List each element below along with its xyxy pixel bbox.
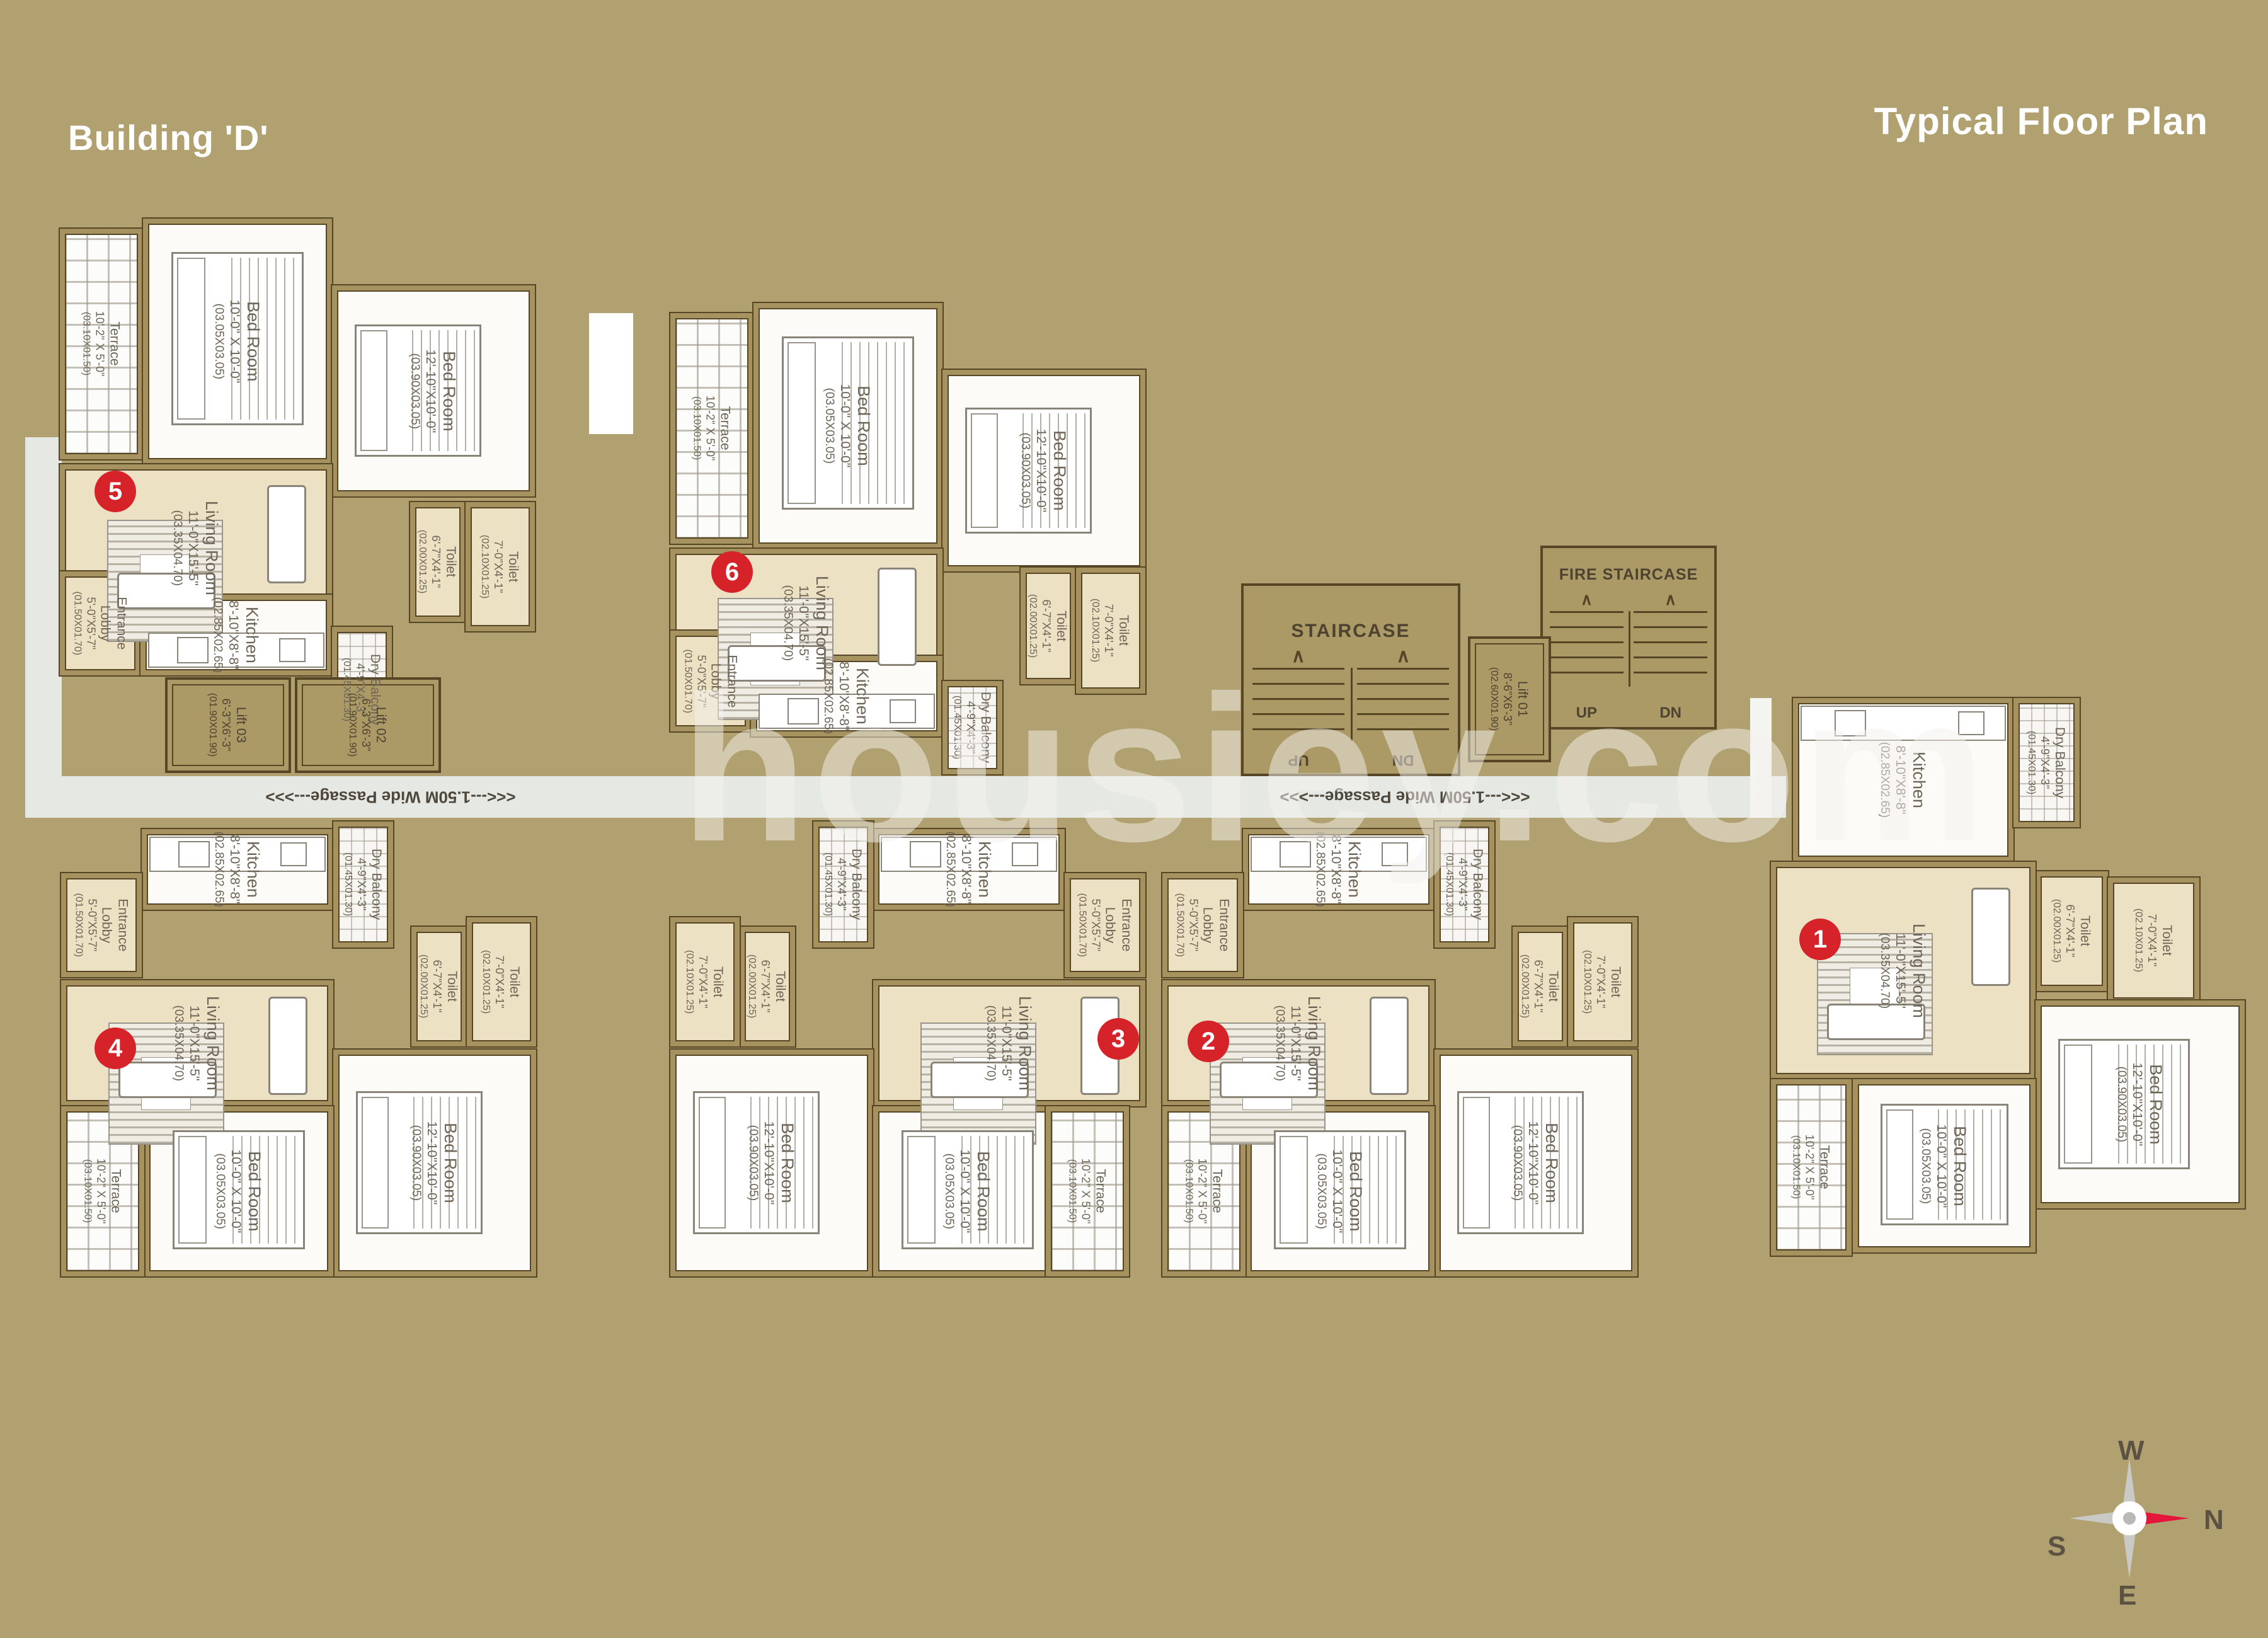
kitchen-dims: 8'-10"X8'-8" <box>1327 835 1344 903</box>
unit-1-number: 1 <box>1813 925 1827 954</box>
living-metric: (03.35X04.70) <box>1273 1005 1287 1081</box>
unit-5-bed12: Bed Room12'-10"X10'-0"(03.90X03.05) <box>332 285 535 496</box>
living-name: Living Room <box>201 500 222 595</box>
dry-name: Dry Balcony <box>1469 849 1486 920</box>
toilet67-metric: (02.00X01.25) <box>746 954 759 1018</box>
toilet67-dims: 6'-7"X4'-1" <box>759 960 772 1013</box>
kitchen-label: Kitchen8'-10"X8'-8"(02.85X02.65) <box>943 832 995 907</box>
living-label: Living Room11'-0"X15'-5"(03.35X04.70) <box>1877 923 1929 1017</box>
kitchen-dims: 8'-10"X8'-8" <box>958 835 974 903</box>
stair-direction-arrow-icon <box>1634 590 1707 609</box>
lobby-dims: 5'-0"X5'-7" <box>1088 899 1102 952</box>
toilet70-label: Toilet7'-0"X4'-1"(02.10X01.25) <box>480 950 522 1014</box>
terrace-metric: (03.10X01.50) <box>1183 1159 1195 1223</box>
unit-6-bed12: Bed Room12'-10"X10'-0"(03.90X03.05) <box>942 370 1145 571</box>
unit-6-dry: Dry Balcony4'-9"X4'-3"(01.45X01.30) <box>942 681 1002 774</box>
terrace-metric: (03.10X01.50) <box>1790 1135 1802 1199</box>
living-label: Living Room11'-0"X15'-5"(03.35X04.70) <box>171 996 223 1091</box>
fire-staircase-label: FIRE STAIRCASE <box>1543 566 1714 584</box>
terrace-label: Terrace10'-2" X 5'-0"(03.10X01.50) <box>1066 1159 1108 1224</box>
kitchen-label: Kitchen8'-10"X8'-8"(02.85X02.65) <box>1313 832 1365 907</box>
kitchen-label: Kitchen8'-10"X8'-8"(02.85X02.65) <box>212 832 263 907</box>
toilet70-name: Toilet <box>710 966 726 997</box>
unit-5-number: 5 <box>108 478 122 506</box>
terrace-label: Terrace10'-2" X 5'-0"(03.10X01.50) <box>80 311 122 377</box>
kitchen-metric: (02.85X02.65) <box>943 832 958 907</box>
terrace-metric: (03.10X01.50) <box>690 396 703 460</box>
lobby-metric: (01.50X01.70) <box>1076 893 1089 957</box>
bed12-metric: (03.90X03.05) <box>1018 433 1033 508</box>
unit-5-toilet67: Toilet6'-7"X4'-1"(02.00X01.25) <box>410 502 466 622</box>
bed10-label: Bed Room10'-0" X 10'-0"(03.05X03.05) <box>822 384 874 468</box>
bed10-metric: (03.05X03.05) <box>822 388 837 464</box>
unit-6-terrace: Terrace10'-2" X 5'-0"(03.10X01.50) <box>670 313 753 544</box>
toilet67-metric: (02.00X01.25) <box>2051 899 2063 963</box>
toilet70-metric: (02.10X01.25) <box>479 535 491 598</box>
bed10-metric: (03.05X03.05) <box>942 1154 956 1229</box>
living-label: Living Room11'-0"X15'-5"(03.35X04.70) <box>1273 996 1324 1091</box>
unit-3-bed12: Bed Room12'-10"X10'-0"(03.90X03.05) <box>670 1050 873 1276</box>
lobby-metric: (01.50X01.70) <box>682 649 694 713</box>
dry-dims: 4'-9"X4'-3" <box>1455 858 1469 911</box>
unit-2-bed10: Bed Room10'-0" X 10'-0"(03.05X03.05) <box>1246 1106 1435 1276</box>
service-shaft <box>589 313 633 434</box>
kitchen-dims: 8'-10"X8'-8" <box>226 835 243 903</box>
bed10-metric: (03.05X03.05) <box>1918 1128 1933 1203</box>
terrace-name: Terrace <box>1209 1169 1225 1213</box>
toilet67-metric: (02.00X01.25) <box>1027 594 1039 658</box>
unit-4-bed10: Bed Room10'-0" X 10'-0"(03.05X03.05) <box>144 1106 333 1276</box>
kitchen-name: Kitchen <box>1344 841 1365 898</box>
bed12-dims: 12'-10"X10'-0" <box>760 1121 777 1205</box>
lobby-label: Entrance Lobby5'-0"X5'-7"(01.50X01.70) <box>1174 890 1232 961</box>
bed12-label: Bed Room12'-10"X10'-0"(03.90X03.05) <box>2114 1063 2166 1147</box>
living-name: Living Room <box>1014 996 1035 1091</box>
toilet70-name: Toilet <box>2158 925 2175 956</box>
unit-4-kitchen: Kitchen8'-10"X8'-8"(02.85X02.65) <box>142 829 333 910</box>
living-dims: 11'-0"X15'-5" <box>186 1005 202 1080</box>
toilet70-metric: (02.10X01.25) <box>2133 908 2145 972</box>
unit-3-dry: Dry Balcony4'-9"X4'-3"(01.45X01.30) <box>813 822 873 948</box>
toilet67-label: Toilet6'-7"X4'-1"(02.00X01.25) <box>416 530 459 593</box>
lobby-name: Entrance Lobby <box>1200 890 1232 961</box>
dry-name: Dry Balcony <box>977 692 994 763</box>
stair-divider <box>1351 668 1353 741</box>
bed10-dims: 10'-0" X 10'-0" <box>956 1150 973 1234</box>
bed10-dims: 10'-0" X 10'-0" <box>1329 1150 1345 1234</box>
unit-3-toilet67: Toilet6'-7"X4'-1"(02.00X01.25) <box>740 927 795 1046</box>
unit-5-marker: 5 <box>94 471 136 512</box>
terrace-dims: 10'-2" X 5'-0" <box>94 1159 108 1224</box>
compass-south-label: S <box>2047 1531 2066 1562</box>
unit-6-toilet67: Toilet6'-7"X4'-1"(02.00X01.25) <box>1021 568 1076 684</box>
terrace-dims: 10'-2" X 5'-0" <box>1195 1159 1209 1224</box>
dry-metric: (01.45X01.30) <box>342 852 355 916</box>
unit-4-toilet67: Toilet6'-7"X4'-1"(02.00X01.25) <box>411 927 467 1046</box>
terrace-name: Terrace <box>717 406 733 450</box>
toilet67-name: Toilet <box>772 971 789 1002</box>
stair-direction-arrow-icon <box>1550 590 1624 609</box>
dry-dims: 4'-9"X4'-3" <box>354 858 368 911</box>
toilet70-dims: 7'-0"X4'-1" <box>696 956 710 1009</box>
lobby-dims: 5'-0"X5'-7" <box>694 655 707 707</box>
dry-label: Dry Balcony4'-9"X4'-3"(01.45X01.30) <box>2025 727 2068 798</box>
lift-01: Lift 01 8'-6"X6'-3" (02.60X01.90) <box>1468 636 1551 762</box>
unit-2-dry: Dry Balcony4'-9"X4'-3"(01.45X01.30) <box>1435 822 1494 948</box>
floor-plan-canvas: Building 'D' Typical Floor Plan <<<---1.… <box>0 0 2268 1638</box>
terrace-dims: 10'-2" X 5'-0" <box>1079 1159 1092 1224</box>
toilet70-name: Toilet <box>1116 615 1132 646</box>
toilet70-dims: 7'-0"X4'-1" <box>2145 914 2158 967</box>
sofa-icon <box>1370 997 1409 1095</box>
stair-treads <box>1634 611 1707 687</box>
terrace-label: Terrace10'-2" X 5'-0"(03.10X01.50) <box>1790 1135 1832 1200</box>
kitchen-metric: (02.85X02.65) <box>212 832 226 907</box>
unit-1-dry: Dry Balcony4'-9"X4'-3"(01.45X01.30) <box>2013 698 2080 827</box>
compass-north-label: N <box>2204 1504 2224 1536</box>
unit-2-toilet70: Toilet7'-0"X4'-1"(02.10X01.25) <box>1568 917 1637 1046</box>
toilet67-name: Toilet <box>1545 971 1562 1002</box>
toilet70-label: Toilet7'-0"X4'-1"(02.10X01.25) <box>684 950 726 1014</box>
toilet67-label: Toilet6'-7"X4'-1"(02.00X01.25) <box>2051 899 2093 963</box>
lobby-metric: (01.50X01.70) <box>1174 893 1186 957</box>
living-metric: (03.35X04.70) <box>170 510 185 585</box>
unit-5-terrace: Terrace10'-2" X 5'-0"(03.10X01.50) <box>60 229 143 459</box>
kitchen-dims: 8'-10"X8'-8" <box>225 600 241 669</box>
kitchen-dims: 8'-10"X8'-8" <box>1892 745 1908 814</box>
terrace-metric: (03.10X01.50) <box>1066 1159 1079 1223</box>
lobby-metric: (01.50X01.70) <box>71 592 84 655</box>
living-metric: (03.35X04.70) <box>781 585 795 660</box>
bed12-name: Bed Room <box>440 1123 461 1203</box>
bed10-dims: 10'-0" X 10'-0" <box>1933 1124 1949 1208</box>
living-dims: 11'-0"X15'-5" <box>795 585 811 660</box>
terrace-name: Terrace <box>1816 1145 1833 1189</box>
terrace-metric: (03.10X01.50) <box>81 1159 94 1223</box>
bed10-dims: 10'-0" X 10'-0" <box>226 300 243 384</box>
living-name: Living Room <box>202 996 223 1091</box>
bed12-metric: (03.90X03.05) <box>409 1125 423 1201</box>
unit-4-dry: Dry Balcony4'-9"X4'-3"(01.45X01.30) <box>333 822 393 948</box>
lobby-label: Entrance Lobby5'-0"X5'-7"(01.50X01.70) <box>1076 890 1135 961</box>
living-metric: (03.35X04.70) <box>983 1005 998 1081</box>
toilet67-name: Toilet <box>2076 915 2093 946</box>
unit-5-toilet70: Toilet7'-0"X4'-1"(02.10X01.25) <box>466 502 535 631</box>
terrace-dims: 10'-2" X 5'-0" <box>93 311 106 377</box>
kitchen-label: Kitchen8'-10"X8'-8"(02.85X02.65) <box>1877 742 1929 818</box>
living-label: Living Room11'-0"X15'-5"(03.35X04.70) <box>170 500 222 595</box>
bed12-name: Bed Room <box>1541 1123 1562 1203</box>
bed10-dims: 10'-0" X 10'-0" <box>837 384 853 468</box>
living-name: Living Room <box>1303 996 1324 1091</box>
bed12-name: Bed Room <box>777 1123 798 1203</box>
toilet67-name: Toilet <box>444 971 461 1002</box>
terrace-name: Terrace <box>1092 1169 1109 1213</box>
unit-4-number: 4 <box>108 1034 122 1063</box>
toilet67-label: Toilet6'-7"X4'-1"(02.00X01.25) <box>746 954 788 1018</box>
toilet67-label: Toilet6'-7"X4'-1"(02.00X01.25) <box>1519 954 1561 1018</box>
toilet70-label: Toilet7'-0"X4'-1"(02.10X01.25) <box>479 535 521 598</box>
lobby-label: Entrance Lobby5'-0"X5'-7"(01.50X01.70) <box>682 646 740 716</box>
kitchen-metric: (02.85X02.65) <box>210 597 225 673</box>
toilet67-dims: 6'-7"X4'-1" <box>1532 960 1545 1013</box>
bed10-name: Bed Room <box>853 386 874 466</box>
toilet67-label: Toilet6'-7"X4'-1"(02.00X01.25) <box>1027 594 1069 658</box>
living-dims: 11'-0"X15'-5" <box>185 510 201 585</box>
stair-direction-arrow-icon <box>1252 645 1344 667</box>
kitchen-name: Kitchen <box>852 668 873 724</box>
unit-2-toilet67: Toilet6'-7"X4'-1"(02.00X01.25) <box>1513 927 1568 1046</box>
fire-staircase-block: FIRE STAIRCASE UP DN <box>1540 546 1717 730</box>
dry-metric: (01.45X01.30) <box>951 696 964 759</box>
unit-3-kitchen: Kitchen8'-10"X8'-8"(02.85X02.65) <box>873 829 1065 910</box>
bed10-label: Bed Room10'-0" X 10'-0"(03.05X03.05) <box>942 1150 994 1234</box>
dry-metric: (01.45X01.30) <box>2025 731 2038 794</box>
kitchen-metric: (02.85X02.65) <box>1313 832 1327 907</box>
bed10-name: Bed Room <box>1345 1151 1366 1232</box>
toilet67-name: Toilet <box>443 546 459 577</box>
unit-6-bed10: Bed Room10'-0" X 10'-0"(03.05X03.05) <box>753 303 942 549</box>
kitchen-metric: (02.85X02.65) <box>1877 742 1892 818</box>
kitchen-name: Kitchen <box>1908 752 1929 808</box>
unit-3-lobby: Entrance Lobby5'-0"X5'-7"(01.50X01.70) <box>1065 873 1145 977</box>
bed10-name: Bed Room <box>244 1151 265 1232</box>
dry-label: Dry Balcony4'-9"X4'-3"(01.45X01.30) <box>822 849 864 920</box>
dry-label: Dry Balcony4'-9"X4'-3"(01.45X01.30) <box>951 692 994 763</box>
unit-4-marker: 4 <box>94 1028 136 1069</box>
lobby-name: Entrance Lobby <box>98 890 130 961</box>
unit-3-terrace: Terrace10'-2" X 5'-0"(03.10X01.50) <box>1046 1106 1129 1276</box>
terrace-metric: (03.10X01.50) <box>80 312 93 375</box>
bed12-metric: (03.90X03.05) <box>1510 1125 1525 1201</box>
living-dims: 11'-0"X15'-5" <box>998 1005 1014 1080</box>
lift-03: Lift 03 6'-3"X6'-3" (01.90X01.90) <box>165 677 291 773</box>
kitchen-name: Kitchen <box>974 841 995 898</box>
compass-hub-icon <box>2112 1501 2146 1535</box>
page-title: Typical Floor Plan <box>1874 100 2208 143</box>
living-label: Living Room11'-0"X15'-5"(03.35X04.70) <box>983 996 1035 1091</box>
dry-name: Dry Balcony <box>368 849 384 920</box>
passage-label-right: <<<---1.50M Wide Passage--->>> <box>1280 787 1530 807</box>
bed10-name: Bed Room <box>1949 1126 1970 1206</box>
unit-6-toilet70: Toilet7'-0"X4'-1"(02.10X01.25) <box>1076 568 1145 694</box>
dry-dims: 4'-9"X4'-3" <box>834 858 848 911</box>
bed12-label: Bed Room12'-10"X10'-0"(03.90X03.05) <box>1510 1121 1562 1205</box>
kitchen-counter-icon <box>1801 706 2006 741</box>
stair-direction-arrow-icon <box>1357 645 1449 667</box>
dry-label: Dry Balcony4'-9"X4'-3"(01.45X01.30) <box>1443 849 1486 920</box>
bed12-label: Bed Room12'-10"X10'-0"(03.90X03.05) <box>408 349 459 433</box>
toilet70-dims: 7'-0"X4'-1" <box>1594 956 1608 1009</box>
compass-east-label: E <box>2118 1580 2136 1612</box>
toilet70-name: Toilet <box>1608 966 1624 997</box>
lobby-dims: 5'-0"X5'-7" <box>83 597 97 650</box>
toilet67-dims: 6'-7"X4'-1" <box>429 535 443 588</box>
toilet70-metric: (02.10X01.25) <box>480 950 493 1014</box>
kitchen-metric: (02.85X02.65) <box>821 658 835 734</box>
side-passage <box>25 437 62 818</box>
passage-label-left: <<<---1.50M Wide Passage--->>> <box>265 787 515 807</box>
toilet70-label: Toilet7'-0"X4'-1"(02.10X01.25) <box>2133 908 2175 972</box>
stair-treads <box>1550 611 1624 687</box>
unit-1-bed12: Bed Room12'-10"X10'-0"(03.90X03.05) <box>2036 1000 2245 1208</box>
lobby-label: Entrance Lobby5'-0"X5'-7"(01.50X01.70) <box>71 588 130 659</box>
toilet70-metric: (02.10X01.25) <box>1581 950 1594 1014</box>
living-dims: 11'-0"X15'-5" <box>1892 933 1908 1008</box>
staircase-label: STAIRCASE <box>1244 621 1458 642</box>
bed12-metric: (03.90X03.05) <box>2114 1067 2129 1142</box>
bed12-metric: (03.90X03.05) <box>408 353 422 428</box>
bed12-dims: 12'-10"X10'-0" <box>1525 1121 1541 1205</box>
unit-4-toilet70: Toilet7'-0"X4'-1"(02.10X01.25) <box>467 917 536 1046</box>
unit-1-kitchen: Kitchen8'-10"X8'-8"(02.85X02.65) <box>1793 698 2013 862</box>
lobby-name: Entrance Lobby <box>1102 890 1134 961</box>
unit-6-marker: 6 <box>711 551 753 593</box>
dry-metric: (01.45X01.30) <box>1443 852 1456 916</box>
bed12-dims: 12'-10"X10'-0" <box>2129 1063 2145 1147</box>
living-name: Living Room <box>1908 923 1929 1017</box>
unit-1-toilet67: Toilet6'-7"X4'-1"(02.00X01.25) <box>2036 871 2108 991</box>
bed10-label: Bed Room10'-0" X 10'-0"(03.05X03.05) <box>1314 1150 1366 1234</box>
stair-treads <box>1252 668 1344 741</box>
bed10-name: Bed Room <box>243 301 263 382</box>
staircase-block: STAIRCASE UP DN <box>1241 583 1460 776</box>
stair-dn-label: DN <box>1357 751 1449 769</box>
corridor-to-unit1 <box>1750 698 1772 818</box>
bed12-name: Bed Room <box>438 351 459 432</box>
toilet70-name: Toilet <box>505 551 522 582</box>
bed10-metric: (03.05X03.05) <box>212 304 226 379</box>
unit-2-kitchen: Kitchen8'-10"X8'-8"(02.85X02.65) <box>1243 829 1435 910</box>
bed12-name: Bed Room <box>2145 1064 2166 1145</box>
bed12-metric: (03.90X03.05) <box>746 1125 760 1201</box>
toilet67-label: Toilet6'-7"X4'-1"(02.00X01.25) <box>418 954 460 1018</box>
dry-dims: 4'-9"X4'-3" <box>963 701 977 754</box>
unit-1-marker: 1 <box>1799 919 1841 960</box>
sofa-icon <box>267 485 306 583</box>
bed12-label: Bed Room12'-10"X10'-0"(03.90X03.05) <box>746 1121 798 1205</box>
unit-1-living: Living Room11'-0"X15'-5"(03.35X04.70) <box>1771 862 2036 1079</box>
toilet67-name: Toilet <box>1053 610 1070 641</box>
unit-4-lobby: Entrance Lobby5'-0"X5'-7"(01.50X01.70) <box>61 873 142 977</box>
terrace-dims: 10'-2" X 5'-0" <box>703 396 717 461</box>
toilet70-label: Toilet7'-0"X4'-1"(02.10X01.25) <box>1089 598 1131 662</box>
toilet70-dims: 7'-0"X4'-1" <box>491 541 505 593</box>
stair-divider <box>1629 611 1630 687</box>
fire-stair-dn-label: DN <box>1634 704 1707 722</box>
sofa-icon <box>268 997 307 1095</box>
toilet67-metric: (02.00X01.25) <box>416 530 429 593</box>
terrace-dims: 10'-2" X 5'-0" <box>1802 1135 1816 1200</box>
bed10-metric: (03.05X03.05) <box>213 1154 227 1229</box>
lift-01-label: Lift 01 <box>1515 681 1531 717</box>
living-metric: (03.35X04.70) <box>171 1005 186 1081</box>
kitchen-dims: 8'-10"X8'-8" <box>835 661 852 730</box>
unit-5-bed10: Bed Room10'-0" X 10'-0"(03.05X03.05) <box>143 219 332 464</box>
dry-label: Dry Balcony4'-9"X4'-3"(01.45X01.30) <box>342 849 384 920</box>
bed10-dims: 10'-0" X 10'-0" <box>227 1150 244 1234</box>
unit-3-marker: 3 <box>1097 1018 1139 1060</box>
unit-2-marker: 2 <box>1188 1021 1229 1062</box>
unit-4-bed12: Bed Room12'-10"X10'-0"(03.90X03.05) <box>333 1050 536 1276</box>
bed12-dims: 12'-10"X10'-0" <box>422 349 438 433</box>
toilet70-label: Toilet7'-0"X4'-1"(02.10X01.25) <box>1581 950 1624 1014</box>
terrace-label: Terrace10'-2" X 5'-0"(03.10X01.50) <box>690 396 733 461</box>
bed10-label: Bed Room10'-0" X 10'-0"(03.05X03.05) <box>212 300 263 384</box>
bed10-metric: (03.05X03.05) <box>1314 1154 1329 1229</box>
bed12-label: Bed Room12'-10"X10'-0"(03.90X03.05) <box>409 1121 461 1205</box>
kitchen-name: Kitchen <box>241 607 262 663</box>
sofa-icon <box>1971 888 2010 986</box>
unit-6-lobby: Entrance Lobby5'-0"X5'-7"(01.50X01.70) <box>670 631 751 731</box>
unit-2-bed12: Bed Room12'-10"X10'-0"(03.90X03.05) <box>1435 1050 1637 1276</box>
toilet70-name: Toilet <box>507 966 523 997</box>
compass-rose: W N E S <box>2047 1430 2224 1619</box>
bed10-name: Bed Room <box>973 1151 994 1232</box>
dry-name: Dry Balcony <box>2051 727 2068 798</box>
sofa-icon <box>878 568 917 666</box>
toilet67-dims: 6'-7"X4'-1" <box>2063 905 2076 958</box>
unit-6-number: 6 <box>725 558 739 587</box>
lift-03-label: Lift 03 <box>233 707 249 743</box>
bed10-label: Bed Room10'-0" X 10'-0"(03.05X03.05) <box>213 1150 265 1234</box>
lobby-metric: (01.50X01.70) <box>72 893 85 957</box>
fire-stair-up-label: UP <box>1550 704 1624 722</box>
kitchen-name: Kitchen <box>243 841 263 898</box>
stair-up-label: UP <box>1252 751 1344 769</box>
terrace-label: Terrace10'-2" X 5'-0"(03.10X01.50) <box>81 1159 123 1224</box>
lobby-name: Entrance Lobby <box>707 646 740 716</box>
toilet70-metric: (02.10X01.25) <box>1089 598 1102 662</box>
unit-1-toilet70: Toilet7'-0"X4'-1"(02.10X01.25) <box>2108 878 2199 1004</box>
terrace-label: Terrace10'-2" X 5'-0"(03.10X01.50) <box>1183 1159 1225 1224</box>
toilet70-dims: 7'-0"X4'-1" <box>1102 604 1116 657</box>
kitchen-label: Kitchen8'-10"X8'-8"(02.85X02.65) <box>210 597 262 673</box>
living-label: Living Room11'-0"X15'-5"(03.35X04.70) <box>781 575 832 670</box>
bed12-label: Bed Room12'-10"X10'-0"(03.90X03.05) <box>1018 429 1070 513</box>
bed12-dims: 12'-10"X10'-0" <box>423 1121 440 1205</box>
living-metric: (03.35X04.70) <box>1877 932 1892 1008</box>
living-dims: 11'-0"X15'-5" <box>1287 1005 1303 1080</box>
unit-2-lobby: Entrance Lobby5'-0"X5'-7"(01.50X01.70) <box>1162 873 1243 977</box>
toilet67-dims: 6'-7"X4'-1" <box>1039 600 1053 653</box>
lobby-dims: 5'-0"X5'-7" <box>84 899 98 952</box>
building-title: Building 'D' <box>68 117 269 158</box>
dry-metric: (01.45X01.30) <box>822 852 835 916</box>
bed12-name: Bed Room <box>1049 430 1070 511</box>
terrace-name: Terrace <box>106 322 123 366</box>
unit-1-bed10: Bed Room10'-0" X 10'-0"(03.05X03.05) <box>1853 1079 2036 1252</box>
lobby-name: Entrance Lobby <box>97 588 129 659</box>
lift-02-label: Lift 02 <box>373 707 389 743</box>
bed12-dims: 12'-10"X10'-0" <box>1033 429 1049 513</box>
unit-3-bed10: Bed Room10'-0" X 10'-0"(03.05X03.05) <box>873 1106 1062 1276</box>
stair-treads <box>1357 668 1449 741</box>
dry-dims: 4'-9"X4'-3" <box>2037 736 2051 789</box>
terrace-name: Terrace <box>108 1169 124 1213</box>
compass-west-label: W <box>2118 1435 2145 1467</box>
toilet67-metric: (02.00X01.25) <box>1519 954 1532 1018</box>
unit-3-toilet70: Toilet7'-0"X4'-1"(02.10X01.25) <box>670 917 740 1046</box>
unit-3-number: 3 <box>1111 1025 1125 1053</box>
toilet70-metric: (02.10X01.25) <box>684 950 696 1014</box>
lobby-label: Entrance Lobby5'-0"X5'-7"(01.50X01.70) <box>72 890 131 961</box>
lobby-dims: 5'-0"X5'-7" <box>1186 899 1200 952</box>
toilet67-metric: (02.00X01.25) <box>418 954 430 1018</box>
toilet67-dims: 6'-7"X4'-1" <box>430 960 444 1013</box>
bed10-label: Bed Room10'-0" X 10'-0"(03.05X03.05) <box>1918 1124 1970 1208</box>
living-name: Living Room <box>811 575 832 670</box>
